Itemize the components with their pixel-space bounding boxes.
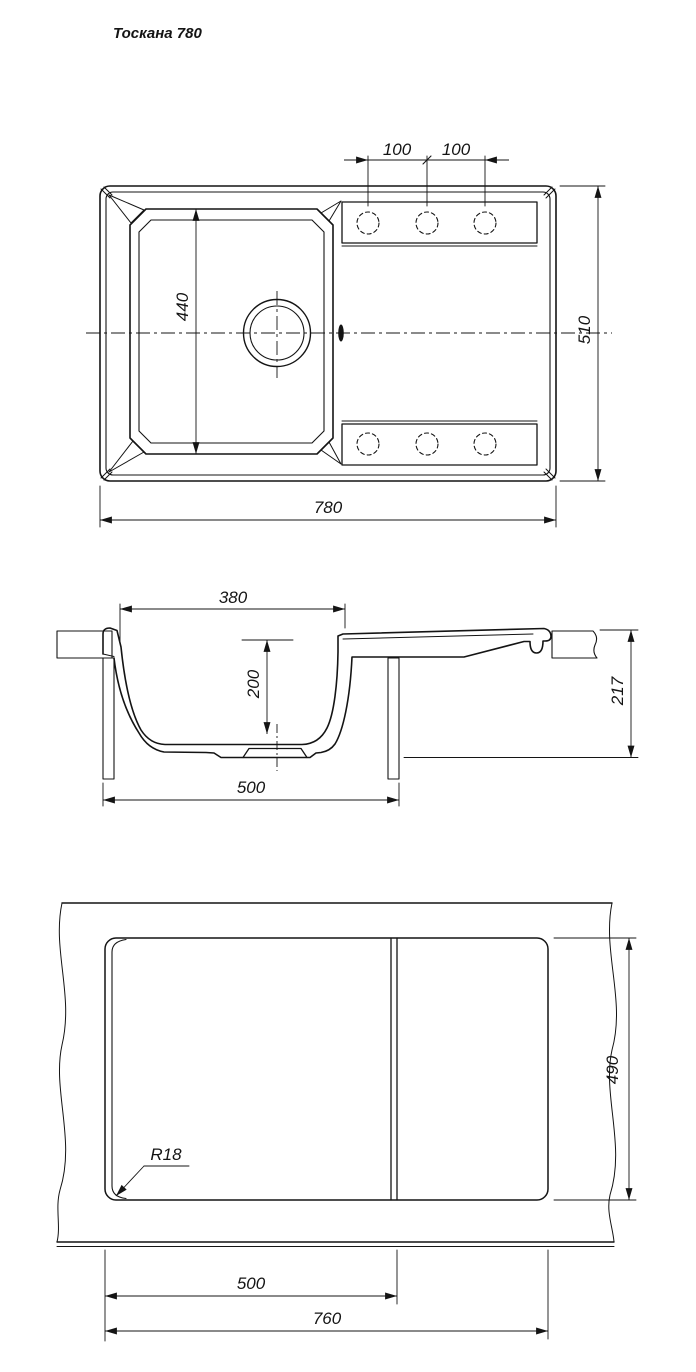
faucet-hole-icon xyxy=(416,433,438,455)
sink-section-profile xyxy=(103,628,551,771)
dim-bowl-cutout-width-label: 500 xyxy=(237,1274,266,1293)
dim-bowl-depth: 200 xyxy=(244,640,267,734)
technical-drawing: Тоскана 780 xyxy=(0,0,696,1372)
dim-overall-width: 780 xyxy=(100,486,556,527)
bowl-divider-line xyxy=(391,938,397,1200)
dim-overall-depth: 510 xyxy=(560,186,605,481)
drawing-title: Тоскана 780 xyxy=(113,25,202,42)
section-view: 380 200 500 217 xyxy=(57,588,638,806)
faucet-hole-icon xyxy=(357,433,379,455)
dim-faucet-spacing-right-label: 100 xyxy=(442,140,471,159)
dim-cutout-height-label: 490 xyxy=(603,1055,622,1084)
dim-bowl-cutout-width: 500 xyxy=(105,1250,397,1341)
dim-overall-width-label: 780 xyxy=(314,498,343,517)
countertop-section xyxy=(57,631,597,779)
dim-corner-radius: R18 xyxy=(116,1145,189,1196)
dim-bowl-depth-label: 200 xyxy=(244,669,263,699)
dim-base-width-label: 500 xyxy=(237,778,266,797)
faucet-hole-strips xyxy=(342,202,537,465)
dim-overall-height-label: 217 xyxy=(608,676,627,706)
dim-overall-depth-label: 510 xyxy=(575,315,594,344)
dim-faucet-spacing: 100 100 xyxy=(344,140,509,206)
sink-outline xyxy=(100,186,556,481)
dim-overall-height: 217 xyxy=(404,630,638,758)
dim-bowl-top-width-label: 380 xyxy=(219,588,248,607)
overflow-mark xyxy=(338,325,344,342)
dim-corner-radius-label: R18 xyxy=(150,1145,182,1164)
dim-cutout-width-label: 760 xyxy=(313,1309,342,1328)
break-line-left xyxy=(57,903,66,1242)
dim-faucet-spacing-left-label: 100 xyxy=(383,140,412,159)
countertop-panel xyxy=(57,903,617,1247)
dim-base-width: 500 xyxy=(103,778,399,806)
dim-cutout-width: 760 xyxy=(105,1250,548,1339)
faucet-hole-icon xyxy=(474,212,496,234)
faucet-hole-icon xyxy=(474,433,496,455)
dim-bowl-length-label: 440 xyxy=(173,292,192,321)
top-view: 100 100 440 510 780 xyxy=(86,140,612,527)
dim-cutout-height: 490 xyxy=(554,938,636,1200)
drawing-page: Тоскана 780 xyxy=(0,0,696,1372)
faucet-hole-icon xyxy=(357,212,379,234)
dim-bowl-top-width: 380 xyxy=(120,588,345,642)
faucet-hole-icon xyxy=(416,212,438,234)
bowl-outline xyxy=(109,195,344,472)
dim-bowl-length: 440 xyxy=(173,209,196,454)
cutout-view: R18 500 760 490 xyxy=(57,903,636,1341)
